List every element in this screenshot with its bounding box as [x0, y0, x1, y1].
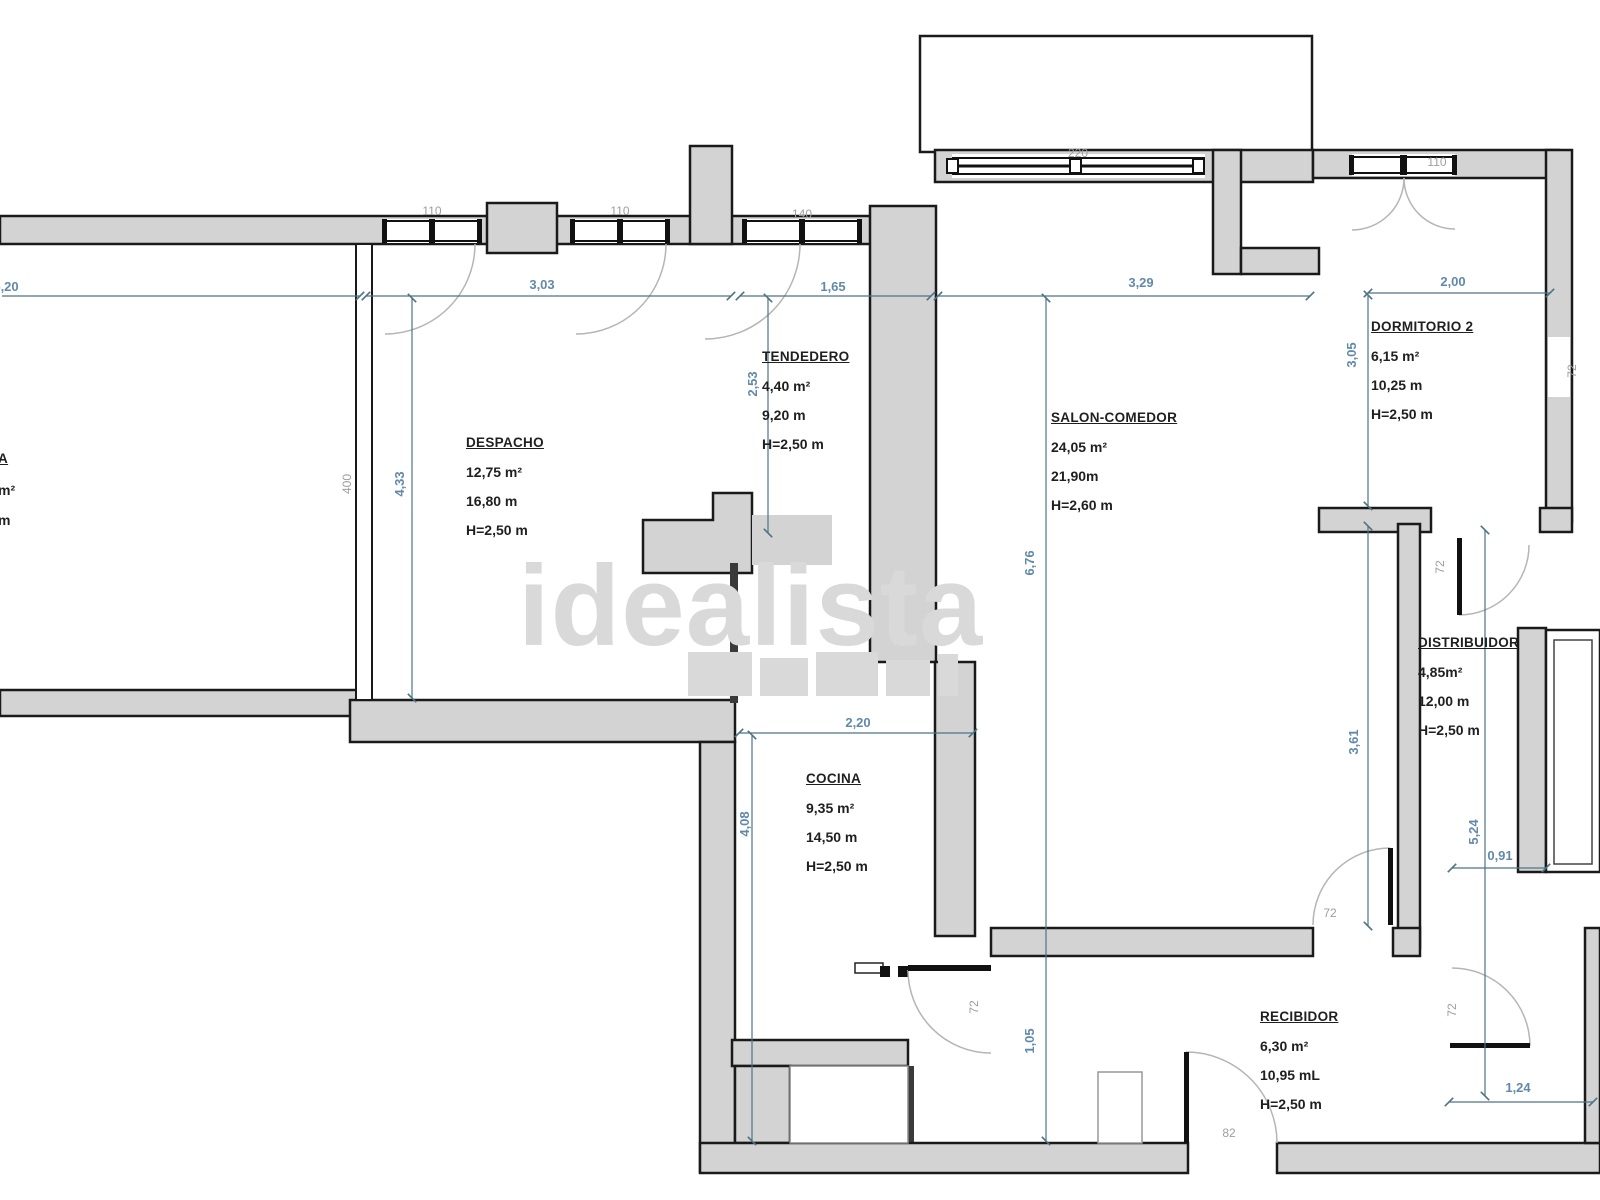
room-height: H=2,50 m — [466, 516, 544, 545]
room-area: 6,15 m² — [1371, 342, 1473, 371]
wall-partition — [356, 244, 372, 700]
room-label-recibidor: RECIBIDOR 6,30 m² 10,95 mL H=2,50 m — [1260, 1002, 1338, 1119]
watermark-text: idealista — [518, 543, 984, 670]
door-leaf — [1457, 538, 1462, 615]
wall-divider — [935, 662, 975, 936]
dim-label: 1,65 — [820, 279, 845, 294]
room-perimeter: m — [0, 505, 15, 535]
dim-label: 5,24 — [1466, 819, 1481, 845]
dim-label: 6,76 — [1022, 550, 1037, 575]
room-perimeter: 10,95 mL — [1260, 1061, 1338, 1090]
room-height: H=2,50 m — [1260, 1090, 1338, 1119]
room-height: H=2,50 m — [806, 852, 868, 881]
floor-plan-drawing: idealista — [0, 0, 1600, 1200]
dim-label: 2,53 — [745, 371, 760, 396]
window-width-label: 110 — [1427, 155, 1446, 169]
room-area: 4,85m² — [1418, 658, 1519, 687]
window-swing-arc — [1352, 178, 1404, 230]
watermark-block — [688, 652, 752, 696]
room-height: H=2,50 m — [762, 430, 849, 459]
room-label-partial-left: A m² m — [0, 444, 15, 535]
room-name: A — [0, 444, 15, 474]
terrace — [920, 36, 1312, 152]
door-leaf — [908, 965, 991, 971]
dim-label: 4,33 — [392, 471, 407, 496]
watermark-block — [886, 660, 930, 696]
window-swing-arc — [576, 244, 666, 334]
closet-box — [1098, 1072, 1142, 1143]
wall-bottom — [700, 1143, 1188, 1173]
room-area: 12,75 m² — [466, 458, 544, 487]
room-name: COCINA — [806, 764, 868, 793]
door-swing-arc — [1459, 545, 1529, 615]
wall-divider — [1393, 928, 1420, 956]
room-perimeter: 14,50 m — [806, 823, 868, 852]
floor-plan-page: idealista — [0, 0, 1600, 1200]
watermark: idealista — [518, 543, 984, 696]
door-width-label: 72 — [1433, 560, 1447, 574]
room-label-despacho: DESPACHO 12,75 m² 16,80 m H=2,50 m — [466, 428, 544, 545]
window-swing-arc — [385, 244, 475, 334]
room-area: 9,35 m² — [806, 794, 868, 823]
room-perimeter: 16,80 m — [466, 487, 544, 516]
door-leaf — [1450, 1043, 1530, 1048]
room-label-cocina: COCINA 9,35 m² 14,50 m H=2,50 m — [806, 764, 868, 881]
wall-segment — [735, 1066, 790, 1143]
wall-segment — [1540, 508, 1572, 532]
door-swing-arc — [1452, 968, 1530, 1046]
window-swing-arc — [1404, 178, 1455, 229]
wall-divider — [991, 928, 1313, 956]
door-width-label: 72 — [1565, 364, 1579, 378]
wall-notch — [1241, 248, 1319, 274]
door-jamb — [898, 966, 908, 977]
room-height: H=2,50 m — [1371, 400, 1473, 429]
window-width-label: 110 — [610, 204, 629, 218]
window-swing-arc — [705, 244, 800, 339]
room-name: DISTRIBUIDOR — [1418, 628, 1519, 657]
room-name: TENDEDERO — [762, 342, 849, 371]
room-perimeter: 9,20 m — [762, 401, 849, 430]
wall-segment — [1518, 628, 1546, 872]
wall-bottom — [1277, 1143, 1600, 1173]
room-area: 6,30 m² — [1260, 1032, 1338, 1061]
dim-label: 3,29 — [1128, 275, 1153, 290]
window-width-label: 140 — [792, 207, 812, 221]
dim-label: 2,00 — [1440, 274, 1465, 289]
room-name: DORMITORIO 2 — [1371, 312, 1473, 341]
room-area: 4,40 m² — [762, 372, 849, 401]
watermark-block — [760, 658, 808, 696]
terrace-outline — [920, 36, 1312, 152]
wall-stub — [690, 146, 732, 244]
room-perimeter: 12,00 m — [1418, 687, 1519, 716]
dim-label: 3,61 — [1346, 729, 1361, 754]
room-name: SALON-COMEDOR — [1051, 403, 1177, 432]
room-label-dormitorio-2: DORMITORIO 2 6,15 m² 10,25 m H=2,50 m — [1371, 312, 1473, 429]
wall-segment — [732, 1040, 908, 1066]
window-width-label: 110 — [422, 204, 441, 218]
door-width-label: 72 — [967, 1000, 981, 1014]
dim-label: 4,08 — [737, 811, 752, 836]
dim-label: 2,20 — [845, 715, 870, 730]
room-perimeter: 10,25 m — [1371, 371, 1473, 400]
door-jamb — [880, 966, 890, 977]
dim-label: 1,24 — [1505, 1080, 1531, 1095]
room-label-distribuidor: DISTRIBUIDOR 4,85m² 12,00 m H=2,50 m — [1418, 628, 1519, 745]
wall-width-label: 400 — [340, 474, 354, 494]
dim-label: 0,91 — [1487, 848, 1512, 863]
dim-label: 3,05 — [1344, 342, 1359, 367]
door-width-label: 72 — [1445, 1003, 1459, 1017]
room-height: H=2,50 m — [1418, 716, 1519, 745]
room-name: RECIBIDOR — [1260, 1002, 1338, 1031]
door-width-label: 82 — [1222, 1126, 1236, 1140]
room-label-tendedero: TENDEDERO 4,40 m² 9,20 m H=2,50 m — [762, 342, 849, 459]
wall-thin — [855, 963, 883, 973]
watermark-block — [816, 652, 878, 696]
room-label-salon-comedor: SALON-COMEDOR 24,05 m² 21,90m H=2,60 m — [1051, 403, 1177, 520]
room-height: H=2,60 m — [1051, 491, 1177, 520]
door-width-label: 72 — [1323, 906, 1337, 920]
door-leaf — [1388, 848, 1393, 925]
room-name: DESPACHO — [466, 428, 544, 457]
step-area — [790, 1066, 908, 1143]
room-area: 24,05 m² — [1051, 433, 1177, 462]
wall-notch — [1213, 150, 1241, 274]
room-perimeter: 21,90m — [1051, 462, 1177, 491]
dim-label: 3,03 — [529, 277, 554, 292]
door-leaf — [1184, 1052, 1189, 1143]
wall-segment — [1398, 524, 1420, 948]
watermark-block — [938, 654, 958, 696]
dim-label: 1,05 — [1022, 1028, 1037, 1053]
wall-chimney — [487, 203, 557, 253]
wall-segment — [350, 700, 735, 742]
wall-segment — [700, 742, 735, 1172]
dim-label: 5,20 — [0, 279, 19, 294]
room-area: m² — [0, 475, 15, 505]
wall-segment — [0, 690, 362, 716]
window-width-label: 220 — [1068, 146, 1088, 160]
wall-segment — [1585, 928, 1600, 1143]
wall-right-outer — [1546, 150, 1572, 522]
